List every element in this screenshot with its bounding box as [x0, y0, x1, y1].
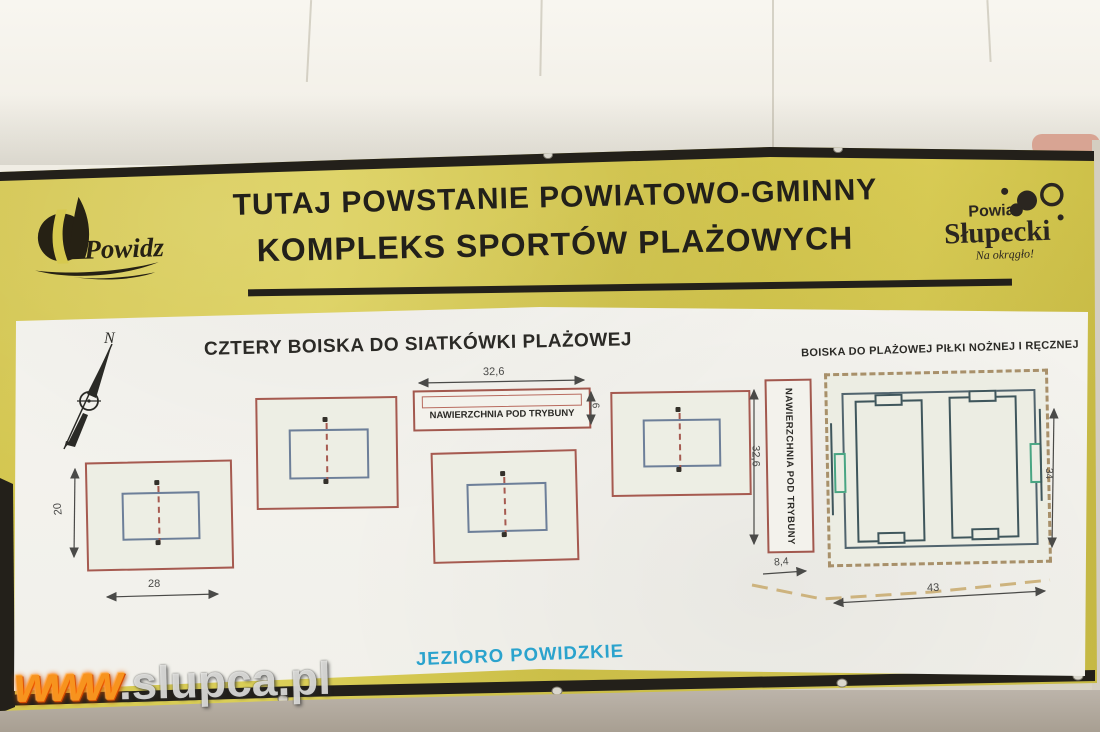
goal [874, 394, 902, 407]
dim-tribune-top-depth: 6 [589, 403, 600, 409]
tribune-top-label: NAWIERZCHNIA POD TRYBUNY [415, 407, 589, 421]
goal [968, 390, 996, 403]
compass-north-arrow: N [48, 328, 128, 458]
volleyball-court-2 [255, 396, 399, 510]
canopy-seam [306, 0, 312, 82]
dim-tribune-side-width: 8,4 [774, 556, 789, 569]
net-post [676, 467, 681, 472]
field-left [855, 399, 926, 542]
net-post [322, 417, 327, 422]
canopy-seam [539, 0, 542, 76]
net-post [502, 532, 507, 537]
net-post [154, 480, 159, 485]
net-post [675, 407, 680, 412]
volleyball-court-4 [610, 390, 751, 497]
banner-title-line1: TUTAJ POWSTANIE POWIATOWO-GMINNY [175, 172, 936, 225]
dim-tribune-top-width: 32,6 [483, 366, 505, 378]
net-post [156, 540, 161, 545]
goal [877, 532, 905, 545]
tribune-surface-top: NAWIERZCHNIA POD TRYBUNY [413, 387, 592, 431]
goal [971, 528, 999, 541]
court-lines [289, 428, 370, 479]
photo-scene: Powidz TUTAJ POWSTANIE POWIATOWO-GMINNY … [0, 0, 1100, 732]
dim-path-length: 43 [927, 582, 940, 594]
powiat-logo-line2: Słupecki [944, 215, 1051, 251]
net-post [323, 479, 328, 484]
dim-fields-height: 34 [1043, 468, 1054, 479]
court-lines [643, 418, 722, 467]
compass-label: N [103, 330, 116, 347]
title-underline [248, 279, 1012, 297]
volleyball-court-3 [431, 449, 580, 564]
court-lines [466, 482, 547, 533]
watermark: www .slupca.pl [13, 648, 331, 714]
powiat-logo-tagline: Na okrągło! [974, 246, 1034, 262]
football-handball-fields [824, 369, 1052, 568]
banner-title-line2: KOMPLEKS SPORTÓW PLAŻOWYCH [195, 218, 916, 270]
dim-tribune-side-length: 32,6 [750, 445, 762, 466]
watermark-www: www [13, 653, 119, 714]
dim-court-height: 20 [52, 502, 65, 515]
canopy-seam [986, 0, 991, 62]
powidz-logo: Powidz [24, 189, 187, 291]
powidz-logo-text: Powidz [83, 232, 165, 265]
court-lines [122, 491, 201, 541]
powiat-slupecki-logo: Powiat Słupecki Na okrągło! [940, 180, 1088, 277]
net-post [500, 471, 505, 476]
volleyball-court-1 [85, 459, 234, 571]
field-right [949, 395, 1020, 538]
tribune-inner-rect [422, 394, 582, 409]
tribune-surface-side: NAWIERZCHNIA POD TRYBUNY [764, 379, 814, 554]
dim-court-width: 28 [148, 578, 160, 590]
side-goal-left [834, 453, 847, 493]
watermark-domain: .slupca.pl [118, 651, 332, 711]
tribune-side-label: NAWIERZCHNIA POD TRYBUNY [767, 381, 813, 552]
